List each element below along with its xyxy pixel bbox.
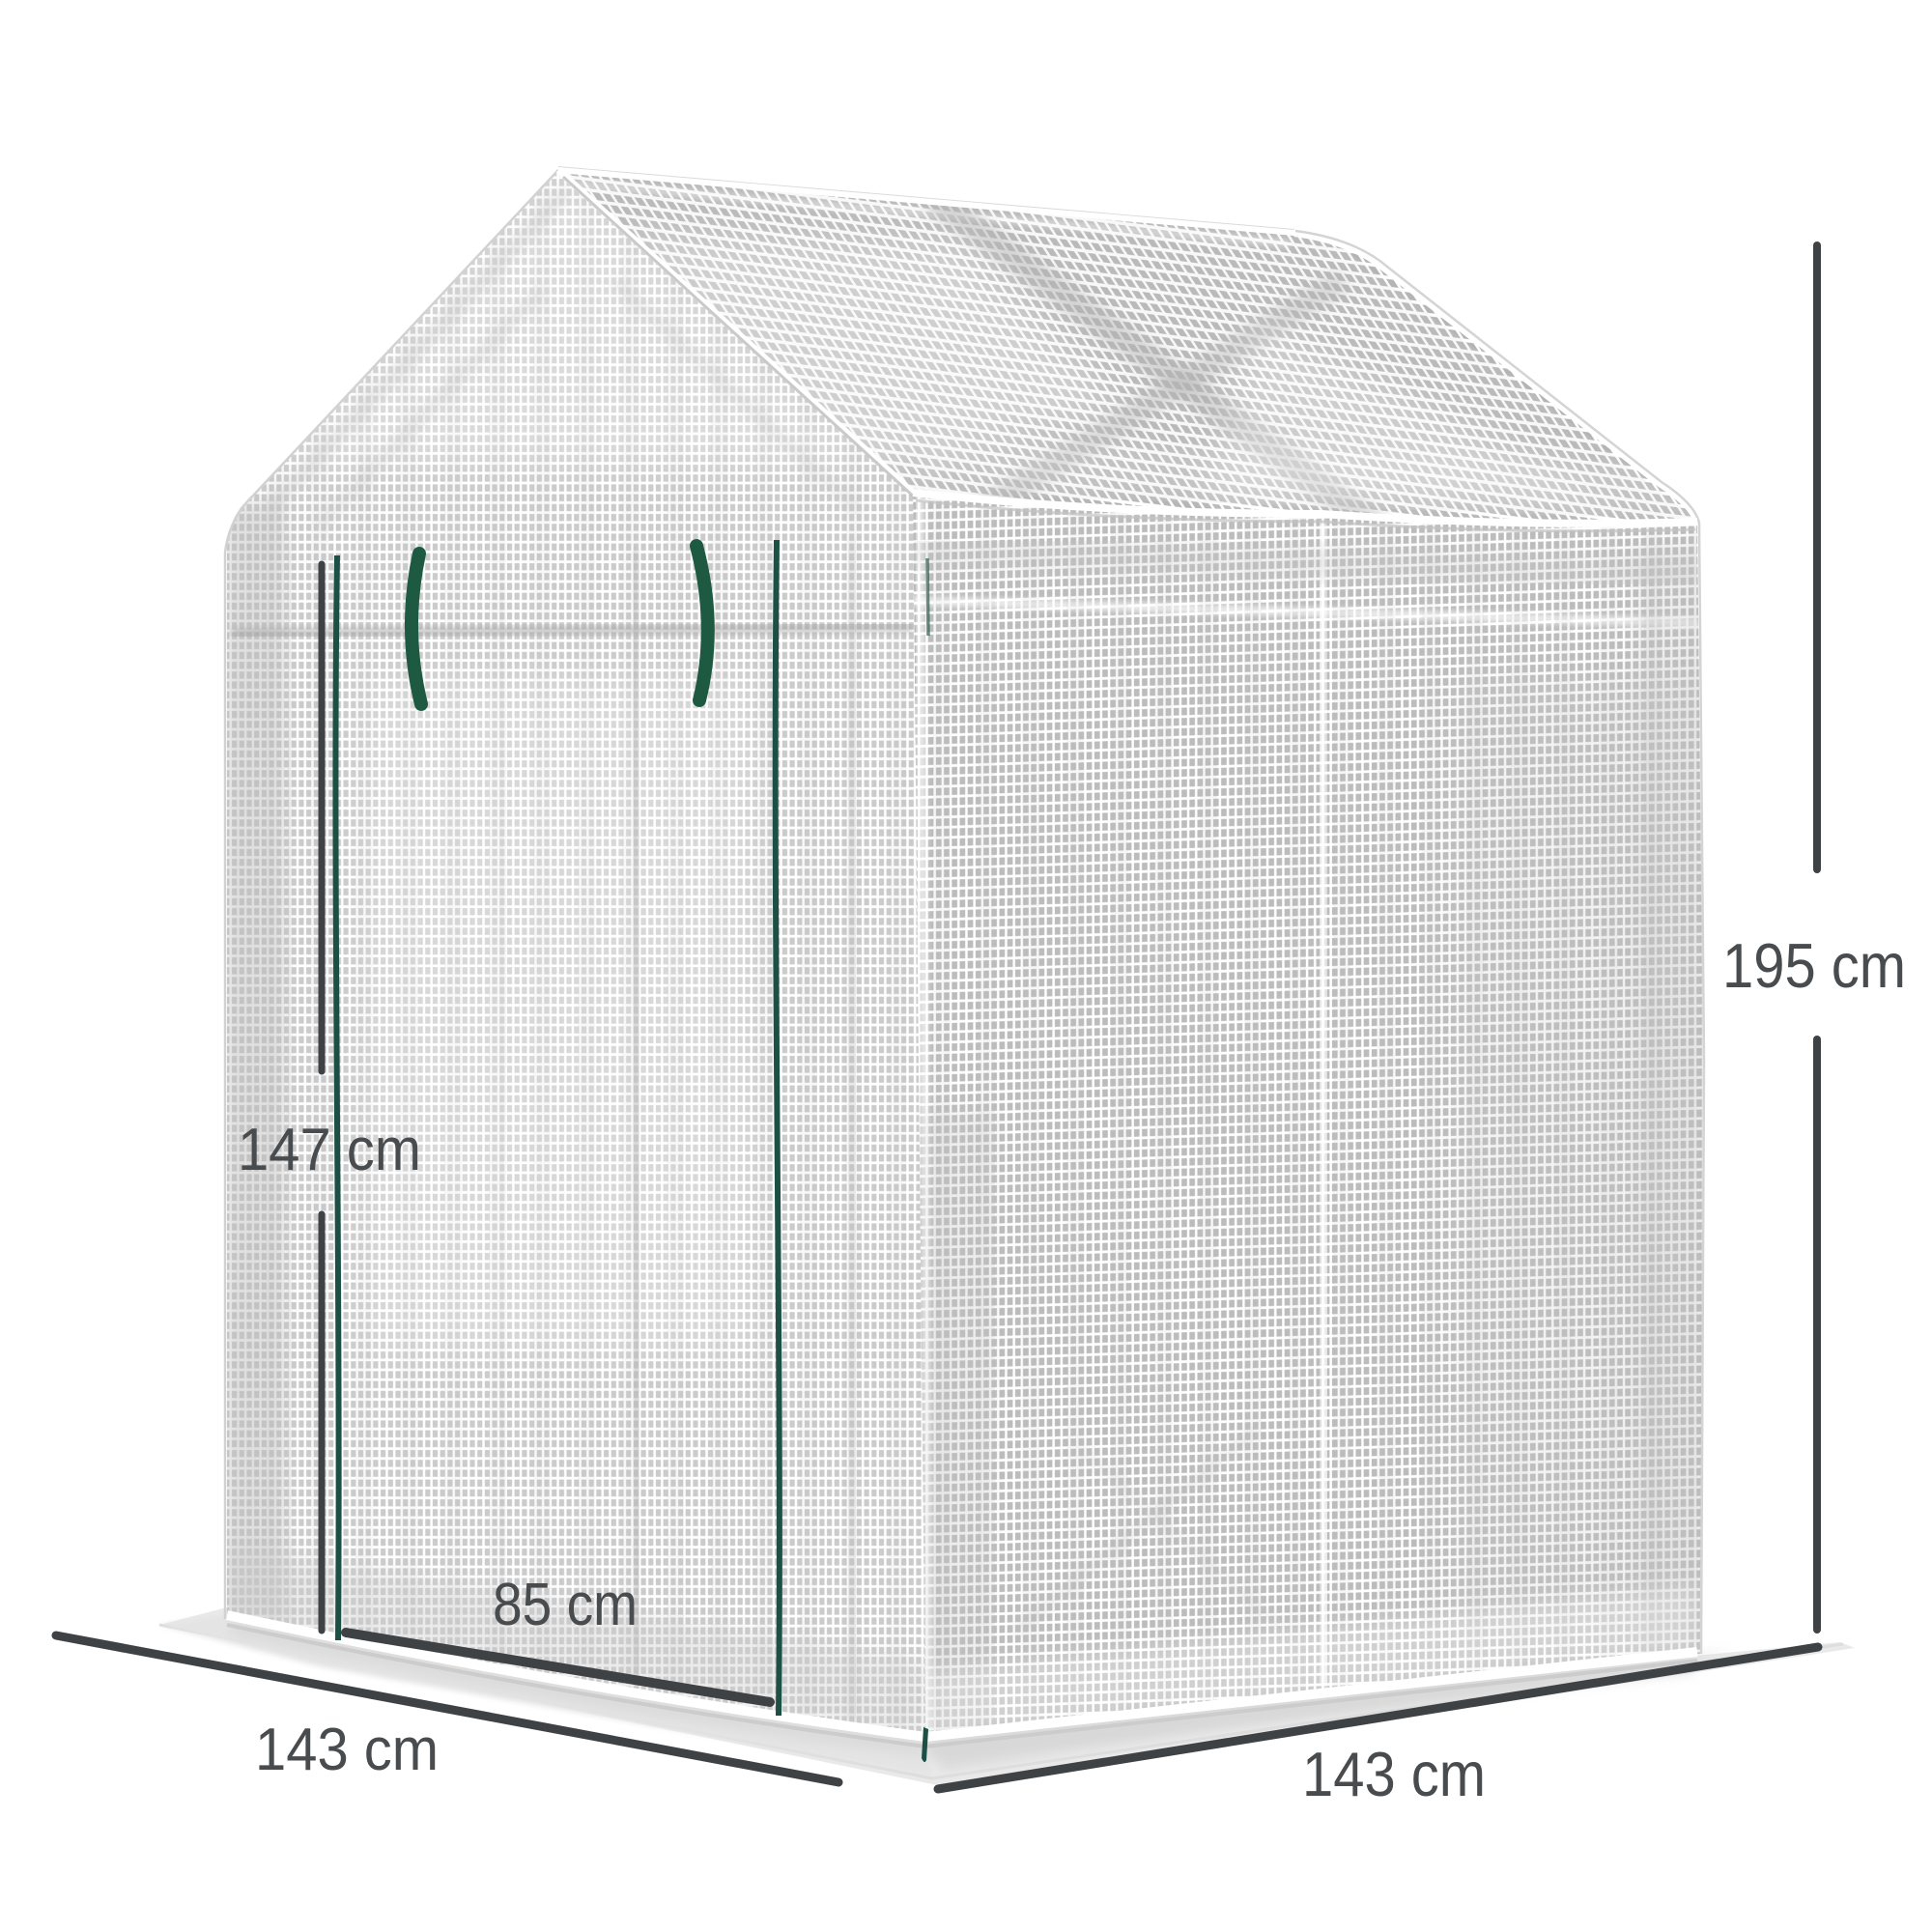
svg-text:143 cm: 143 cm: [1302, 1739, 1486, 1809]
svg-text:143 cm: 143 cm: [255, 1717, 439, 1783]
svg-text:147 cm: 147 cm: [238, 1117, 421, 1183]
svg-text:195 cm: 195 cm: [1722, 930, 1906, 1001]
svg-text:85 cm: 85 cm: [493, 1572, 638, 1638]
